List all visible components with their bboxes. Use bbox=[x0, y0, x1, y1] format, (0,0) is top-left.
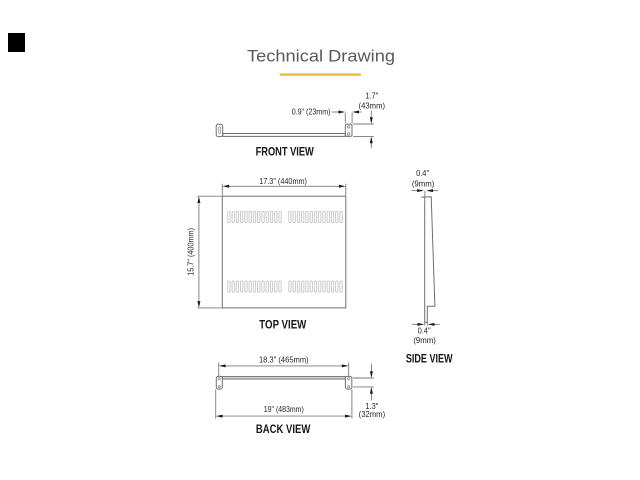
svg-text:(43mm): (43mm) bbox=[359, 100, 386, 110]
svg-text:18.3" (465mm): 18.3" (465mm) bbox=[259, 354, 309, 364]
svg-text:Technical Drawing: Technical Drawing bbox=[247, 47, 395, 66]
svg-text:17.3" (440mm): 17.3" (440mm) bbox=[259, 176, 307, 186]
svg-text:(9mm): (9mm) bbox=[412, 178, 435, 188]
svg-text:0.9" (23mm): 0.9" (23mm) bbox=[292, 106, 331, 116]
svg-text:0.4": 0.4" bbox=[416, 168, 429, 178]
svg-text:1.7": 1.7" bbox=[365, 91, 378, 101]
svg-text:TOP VIEW: TOP VIEW bbox=[259, 318, 306, 331]
svg-text:(9mm): (9mm) bbox=[413, 335, 436, 345]
svg-text:(32mm): (32mm) bbox=[359, 409, 386, 419]
svg-text:SIDE VIEW: SIDE VIEW bbox=[406, 353, 453, 366]
svg-text:19" (483mm): 19" (483mm) bbox=[264, 404, 304, 414]
svg-text:15.7" (400mm): 15.7" (400mm) bbox=[186, 228, 196, 276]
svg-text:FRONT VIEW: FRONT VIEW bbox=[256, 145, 314, 158]
svg-text:BACK VIEW: BACK VIEW bbox=[256, 423, 310, 436]
